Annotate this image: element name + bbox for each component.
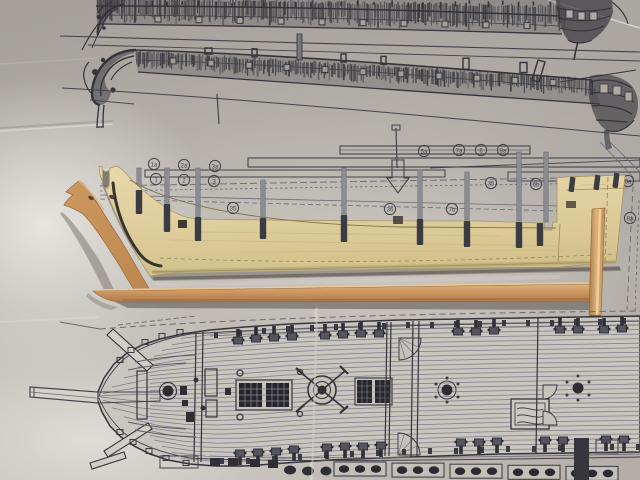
svg-text:7b: 7b xyxy=(449,207,456,213)
svg-text:6b: 6b xyxy=(533,182,540,188)
svg-text:8a: 8a xyxy=(627,216,634,222)
svg-text:7a: 7a xyxy=(456,148,463,154)
svg-text:1a: 1a xyxy=(151,162,158,168)
svg-text:3a: 3a xyxy=(625,179,632,185)
svg-text:3a: 3a xyxy=(212,164,219,170)
svg-text:36: 36 xyxy=(387,207,394,213)
svg-text:2a: 2a xyxy=(181,163,188,169)
svg-text:35: 35 xyxy=(488,181,495,187)
svg-text:5a: 5a xyxy=(421,149,428,155)
svg-text:8a: 8a xyxy=(500,148,507,154)
svg-text:35: 35 xyxy=(230,206,237,212)
